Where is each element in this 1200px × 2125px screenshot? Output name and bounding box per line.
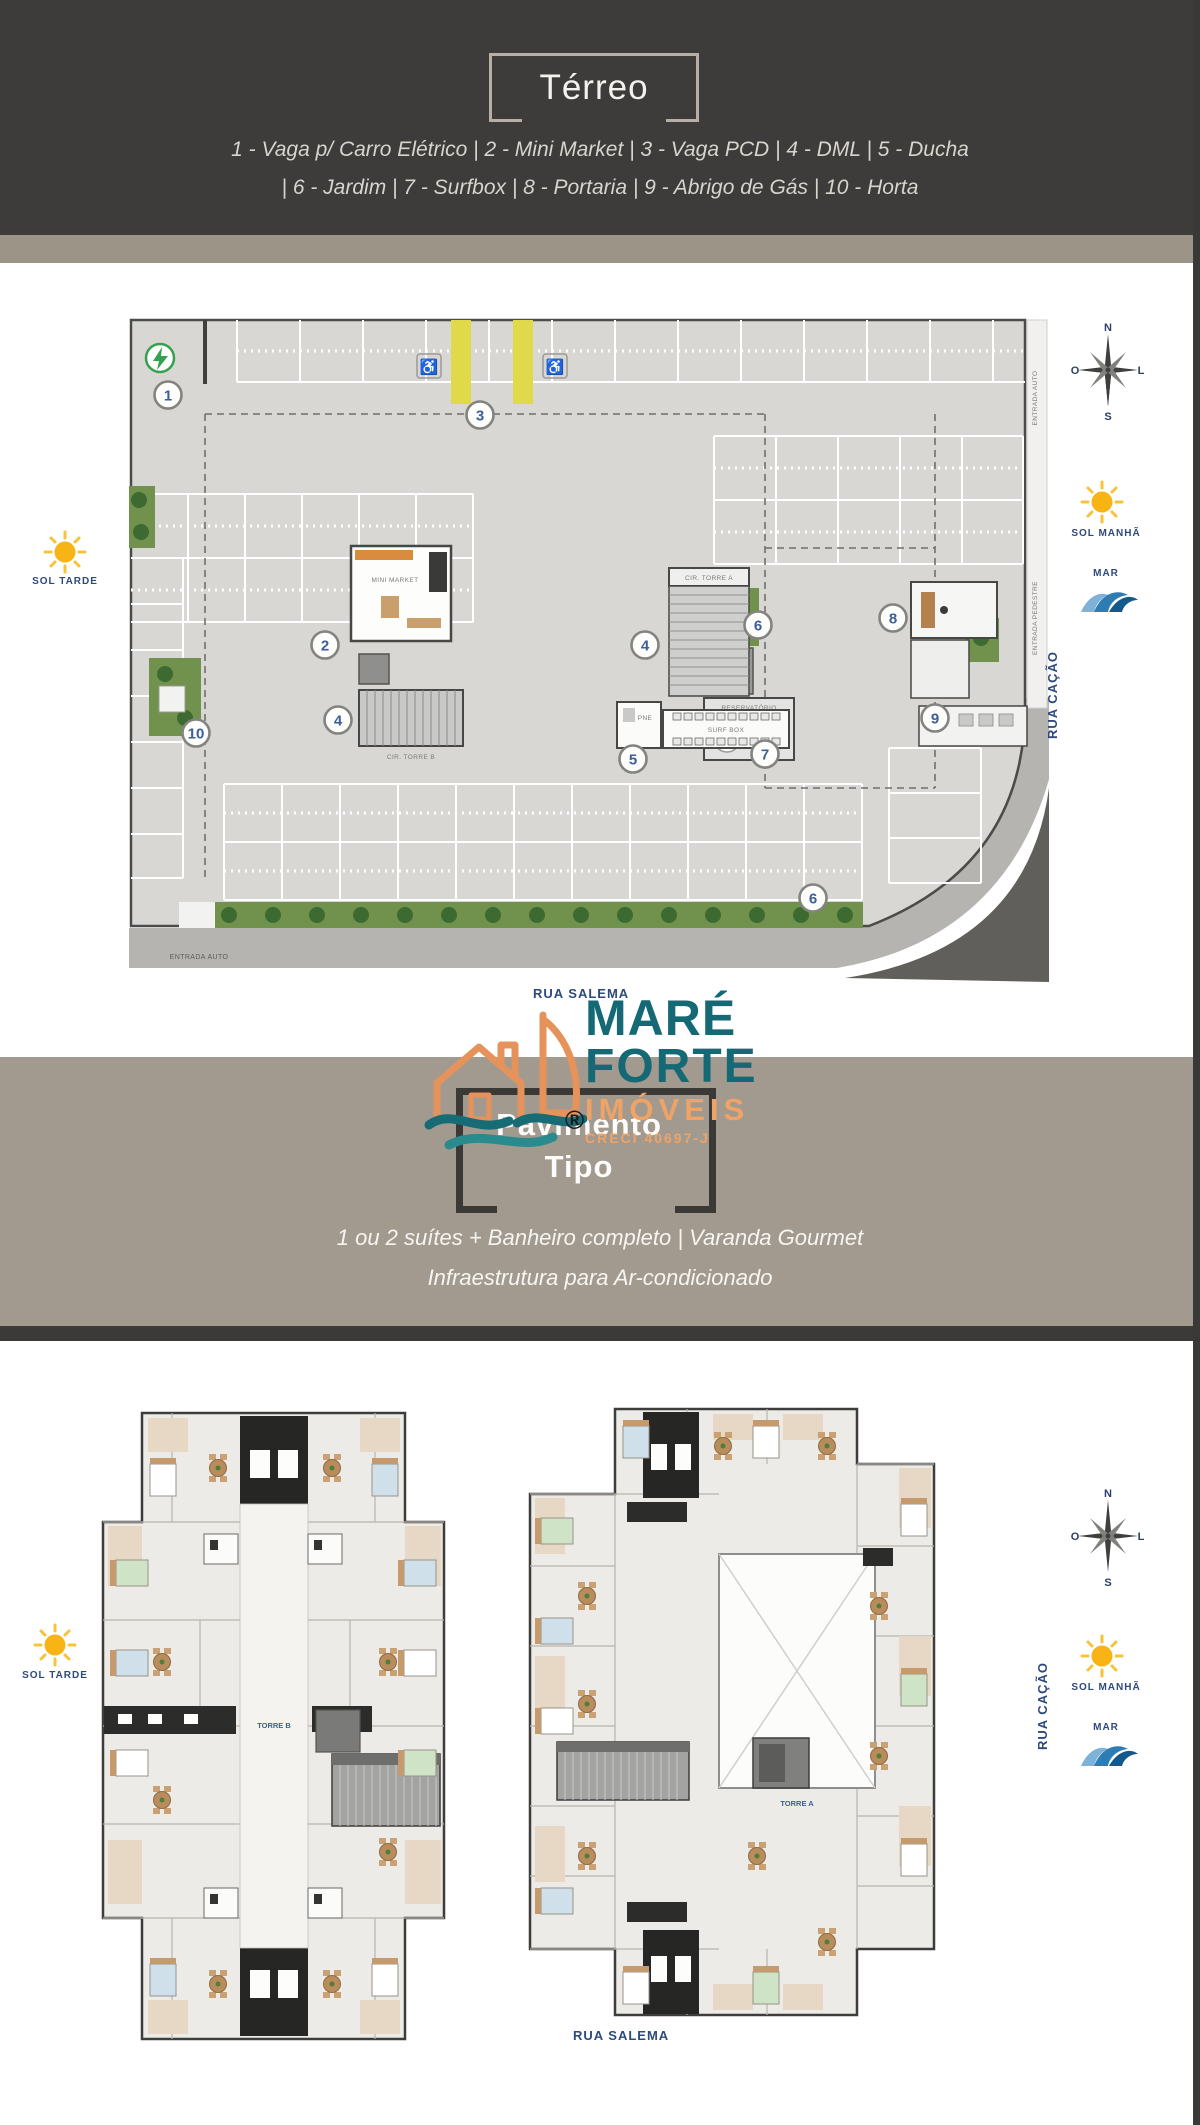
- logo-house-boat-waves-icon: [423, 1003, 588, 1161]
- header-band: Térreo 1 - Vaga p/ Carro Elétrico | 2 - …: [0, 0, 1200, 235]
- compass-icon: N S O L: [1070, 322, 1146, 422]
- sun-icon: [32, 1622, 78, 1668]
- sun-icon: [42, 529, 88, 575]
- torre-a-label: TORRE A: [780, 1799, 814, 1808]
- street-label-rua-cacao: RUA CAÇÃO: [1045, 635, 1061, 755]
- plan-number-circle: 4: [325, 707, 352, 734]
- street-label-rua-cacao: RUA CAÇÃO: [1035, 1646, 1051, 1766]
- svg-text:6: 6: [754, 618, 762, 635]
- tipo-subtitle-line2: Infraestrutura para Ar-condicionado: [0, 1258, 1200, 1298]
- svg-text:L: L: [1138, 1531, 1145, 1543]
- svg-text:4: 4: [334, 713, 343, 730]
- logo-forte: FORTE: [585, 1043, 785, 1091]
- ducha-room: PNE: [617, 702, 661, 748]
- logo-mare: MARÉ: [585, 993, 785, 1043]
- mar-label: MAR: [1051, 1722, 1161, 1733]
- hedge-jardim: [215, 902, 863, 928]
- tipo-subtitle-line1: 1 ou 2 suítes + Banheiro completo | Vara…: [0, 1218, 1200, 1258]
- plan-number-circle: 1: [155, 382, 182, 409]
- mare-forte-logo: MARÉ FORTE IMÓVEIS CRECI 40697-J ®: [423, 993, 783, 1168]
- terreo-legend-line2: | 6 - Jardim | 7 - Surfbox | 8 - Portari…: [0, 169, 1200, 207]
- waves-icon: [1078, 582, 1142, 616]
- sun-icon: [1079, 479, 1125, 525]
- svg-text:S: S: [1104, 411, 1111, 422]
- svg-text:L: L: [1138, 365, 1145, 377]
- sol-manha-label: SOL MANHÃ: [1051, 528, 1161, 539]
- svg-text:5: 5: [629, 752, 637, 769]
- svg-text:O: O: [1071, 365, 1080, 377]
- logo-imoveis: IMÓVEIS: [585, 1091, 785, 1129]
- plan-number-circle: 6: [745, 612, 772, 639]
- plan-number-circle: 6: [800, 885, 827, 912]
- svg-text:8: 8: [889, 611, 897, 628]
- torre-a-plan-svg: TORRE A: [527, 1406, 937, 2018]
- torre-a-stairs: [557, 1742, 689, 1800]
- entrada-auto-side-label: ENTRADA AUTO: [1032, 371, 1039, 426]
- svg-text:PNE: PNE: [638, 715, 653, 722]
- terreo-plan-svg: ♿ ♿: [129, 318, 1049, 982]
- compass-icon: N S O L: [1070, 1488, 1146, 1588]
- plan-number-circle: 9: [922, 705, 949, 732]
- svg-text:♿: ♿: [546, 358, 565, 376]
- ev-charger-icon: [146, 344, 174, 372]
- svg-text:2: 2: [321, 638, 329, 655]
- svg-text:CIR. TORRE B: CIR. TORRE B: [387, 754, 435, 761]
- logo-creci: CRECI 40697-J: [585, 1129, 785, 1147]
- svg-text:N: N: [1104, 322, 1112, 334]
- svg-text:3: 3: [476, 408, 484, 425]
- dark-divider: [0, 1326, 1200, 1341]
- svg-text:10: 10: [188, 726, 205, 743]
- sol-tarde-label: SOL TARDE: [0, 1670, 110, 1681]
- street-label-rua-salema: RUA SALEMA: [573, 2028, 669, 2043]
- sol-tarde-label: SOL TARDE: [10, 576, 120, 587]
- svg-text:4: 4: [641, 638, 650, 655]
- sol-manha-label: SOL MANHÃ: [1051, 1682, 1161, 1693]
- plan-number-circle: 2: [312, 632, 339, 659]
- svg-text:1: 1: [164, 388, 172, 405]
- logo-text: MARÉ FORTE IMÓVEIS CRECI 40697-J: [585, 993, 785, 1147]
- vaga-pcd-stripe: [451, 320, 471, 404]
- terreo-title-frame: Térreo: [489, 53, 699, 122]
- page: Térreo 1 - Vaga p/ Carro Elétrico | 2 - …: [0, 0, 1200, 2125]
- svg-text:S: S: [1104, 1577, 1111, 1588]
- sun-icon: [1079, 1633, 1125, 1679]
- svg-text:9: 9: [931, 711, 939, 728]
- plan-number-circle: 10: [183, 720, 210, 747]
- page-right-edge: [1193, 0, 1200, 2125]
- entrada-auto-label: ENTRADA AUTO: [170, 954, 229, 961]
- torre-b-label: TORRE B: [257, 1721, 291, 1730]
- tan-divider-band: [0, 235, 1200, 263]
- plan-number-circle: 3: [467, 402, 494, 429]
- svg-text:CIR. TORRE A: CIR. TORRE A: [685, 575, 733, 582]
- waves-icon: [1078, 1736, 1142, 1770]
- vaga-pcd-stripe: [513, 320, 533, 404]
- stair-core-torre-a: CIR. TORRE A: [669, 568, 749, 696]
- plan-number-circle: 5: [620, 746, 647, 773]
- svg-text:7: 7: [761, 747, 769, 764]
- torre-b-plan-svg: TORRE B: [100, 1410, 447, 2042]
- terreo-legend-line1: 1 - Vaga p/ Carro Elétrico | 2 - Mini Ma…: [0, 131, 1200, 169]
- svg-text:N: N: [1104, 1488, 1112, 1500]
- entrance-gap: [179, 902, 215, 928]
- svg-text:SURF BOX: SURF BOX: [708, 727, 745, 734]
- plan-number-circle: 8: [880, 605, 907, 632]
- svg-text:6: 6: [809, 891, 817, 908]
- terreo-legend: 1 - Vaga p/ Carro Elétrico | 2 - Mini Ma…: [0, 131, 1200, 207]
- tipo-subtitle: 1 ou 2 suítes + Banheiro completo | Vara…: [0, 1218, 1200, 1298]
- entrada-pedestre-label: ENTRADA PEDESTRE: [1032, 581, 1039, 655]
- torre-a-elevator-core: [753, 1738, 809, 1788]
- mini-market-room: MINI MARKET: [351, 546, 451, 641]
- terreo-title: Térreo: [492, 68, 696, 108]
- logo-registered-mark: ®: [565, 1105, 584, 1136]
- plan-number-circle: 7: [752, 741, 779, 768]
- svg-text:♿: ♿: [420, 358, 439, 376]
- plan-number-circle: 4: [632, 632, 659, 659]
- svg-text:O: O: [1071, 1531, 1080, 1543]
- mar-label: MAR: [1051, 568, 1161, 579]
- svg-text:MINI MARKET: MINI MARKET: [371, 577, 418, 584]
